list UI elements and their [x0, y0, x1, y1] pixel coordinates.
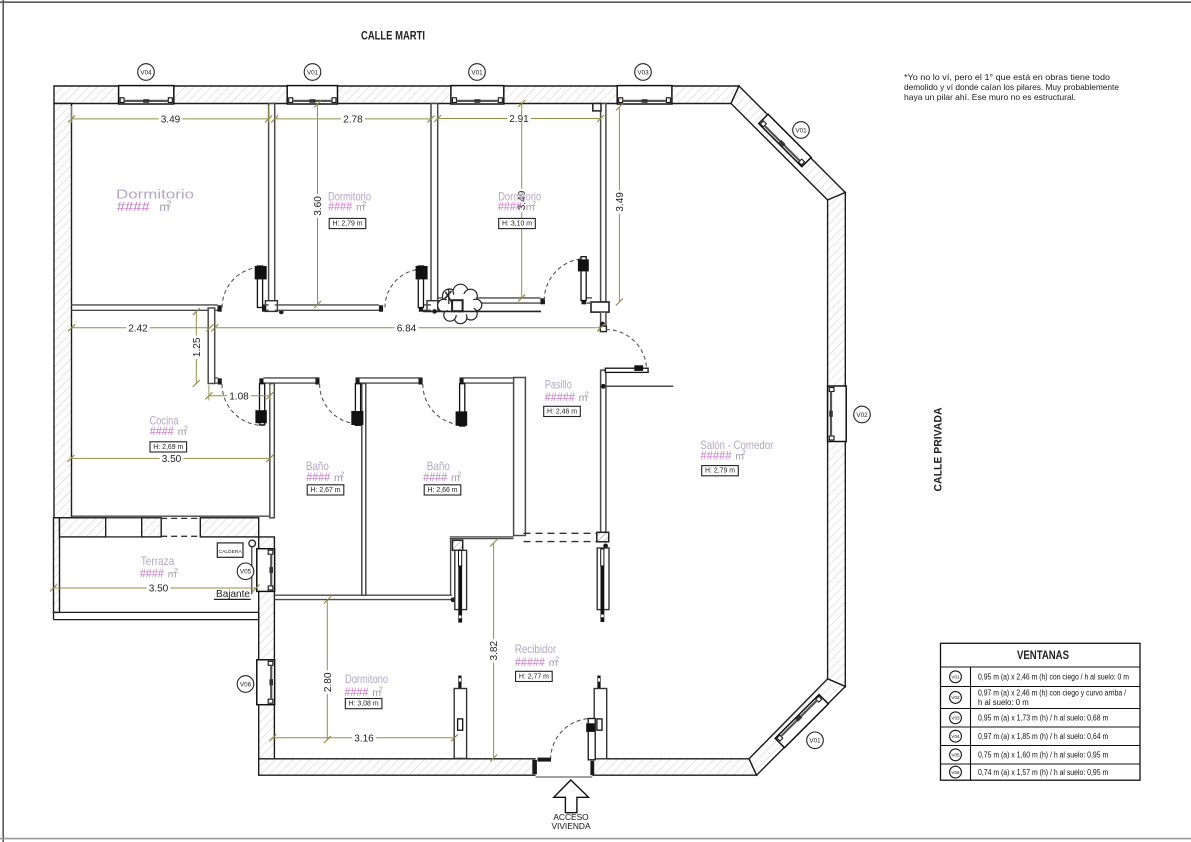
- svg-text:H: 3,08 m: H: 3,08 m: [349, 699, 379, 708]
- svg-text:V01: V01: [795, 127, 807, 134]
- svg-text:V04: V04: [951, 734, 960, 739]
- svg-text:V02: V02: [856, 412, 868, 419]
- svg-text:####: ####: [306, 470, 330, 484]
- svg-text:2: 2: [532, 199, 536, 208]
- svg-text:V01: V01: [307, 69, 319, 76]
- svg-text:3.82: 3.82: [488, 641, 500, 661]
- svg-text:#####: #####: [545, 390, 575, 404]
- svg-text:3.16: 3.16: [354, 732, 374, 744]
- svg-text:0,97 m (a) x 2,46 m (h) con ci: 0,97 m (a) x 2,46 m (h) con ciego y curv…: [978, 689, 1127, 698]
- svg-text:2: 2: [555, 655, 559, 664]
- svg-text:V05: V05: [951, 752, 960, 757]
- svg-text:H: 2,67 m: H: 2,67 m: [311, 485, 341, 494]
- svg-text:#####: #####: [700, 449, 731, 463]
- svg-text:2: 2: [340, 469, 344, 478]
- svg-text:####: ####: [140, 567, 164, 581]
- svg-text:h al suelo: 0 m: h al suelo: 0 m: [978, 698, 1029, 707]
- svg-text:H: 3,10 m: H: 3,10 m: [502, 218, 532, 227]
- svg-text:V06: V06: [951, 770, 960, 775]
- svg-text:H: 2,77 m: H: 2,77 m: [519, 671, 549, 680]
- svg-text:V02: V02: [951, 695, 960, 700]
- svg-text:0,95 m (a) x 2,46 m (h) con ci: 0,95 m (a) x 2,46 m (h) con ciego / h al…: [978, 673, 1129, 682]
- svg-text:2: 2: [174, 566, 178, 575]
- svg-text:Bajante: Bajante: [216, 589, 250, 600]
- svg-text:#####: #####: [515, 655, 545, 669]
- svg-text:VIVIENDA: VIVIENDA: [551, 821, 591, 831]
- svg-text:2: 2: [379, 685, 383, 694]
- svg-text:V01: V01: [471, 69, 483, 76]
- svg-text:2: 2: [742, 448, 746, 457]
- svg-text:H: 2,69 m: H: 2,69 m: [153, 442, 183, 451]
- svg-text:####: ####: [150, 424, 174, 438]
- svg-text:*Yo no lo ví, pero el 1° que e: *Yo no lo ví, pero el 1° que está en obr…: [904, 73, 1110, 82]
- svg-text:2: 2: [362, 199, 366, 208]
- svg-text:3.60: 3.60: [312, 196, 324, 216]
- svg-text:####: ####: [117, 199, 151, 214]
- svg-text:2.78: 2.78: [343, 113, 363, 125]
- svg-text:2.80: 2.80: [322, 672, 334, 692]
- svg-text:1.08: 1.08: [229, 390, 249, 402]
- svg-text:V05: V05: [240, 569, 252, 576]
- svg-text:H: 2,79 m: H: 2,79 m: [333, 218, 363, 227]
- svg-text:V03: V03: [951, 715, 960, 720]
- svg-text:demolido y ví donde caían los: demolido y ví donde caían los pilares. M…: [904, 83, 1119, 92]
- svg-text:0,75 m (a) x 1,60 m (h) / h al: 0,75 m (a) x 1,60 m (h) / h al suelo: 0,…: [978, 751, 1108, 760]
- svg-text:3.50: 3.50: [149, 582, 169, 594]
- svg-text:3.49: 3.49: [614, 192, 626, 212]
- svg-text:2: 2: [457, 469, 461, 478]
- svg-text:2.42: 2.42: [128, 322, 148, 334]
- svg-text:####: ####: [344, 685, 368, 699]
- svg-text:2: 2: [167, 199, 172, 209]
- svg-text:1.25: 1.25: [191, 337, 203, 357]
- svg-text:CALDERA: CALDERA: [219, 549, 243, 555]
- svg-text:CALLE PRIVADA: CALLE PRIVADA: [933, 407, 945, 491]
- svg-text:V01: V01: [951, 674, 960, 679]
- svg-text:haya un pilar ahí. Ese muro no: haya un pilar ahí. Ese muro no es estruc…: [904, 93, 1076, 102]
- svg-text:####: ####: [328, 199, 352, 213]
- svg-text:H: 2,79 m: H: 2,79 m: [705, 466, 735, 475]
- svg-text:3.49: 3.49: [161, 113, 181, 125]
- svg-text:0,97 m (a) x 1,85 m (h) / h al: 0,97 m (a) x 1,85 m (h) / h al suelo: 0,…: [978, 732, 1108, 741]
- svg-text:V04: V04: [140, 69, 152, 76]
- svg-text:V01: V01: [809, 738, 821, 745]
- svg-text:H: 2,66 m: H: 2,66 m: [428, 485, 458, 494]
- svg-text:V06: V06: [240, 681, 252, 688]
- svg-text:0,74 m (a) x 1,57 m (h) / h al: 0,74 m (a) x 1,57 m (h) / h al suelo: 0,…: [978, 768, 1108, 777]
- svg-text:2: 2: [585, 390, 589, 399]
- svg-text:####: ####: [498, 199, 522, 213]
- svg-text:####: ####: [423, 470, 447, 484]
- svg-text:VENTANAS: VENTANAS: [1017, 650, 1069, 662]
- svg-text:2.91: 2.91: [509, 113, 529, 125]
- svg-text:CALLE MARTI: CALLE MARTI: [361, 31, 425, 43]
- svg-text:0,95 m (a) x 1,73 m (h) / h al: 0,95 m (a) x 1,73 m (h) / h al suelo: 0,…: [978, 714, 1108, 723]
- svg-text:V03: V03: [637, 69, 649, 76]
- svg-text:2: 2: [184, 424, 188, 433]
- svg-text:3.50: 3.50: [162, 453, 182, 465]
- svg-text:Recibidor: Recibidor: [515, 642, 557, 656]
- svg-text:6.84: 6.84: [397, 322, 417, 334]
- svg-text:H: 2,46 m: H: 2,46 m: [547, 406, 577, 415]
